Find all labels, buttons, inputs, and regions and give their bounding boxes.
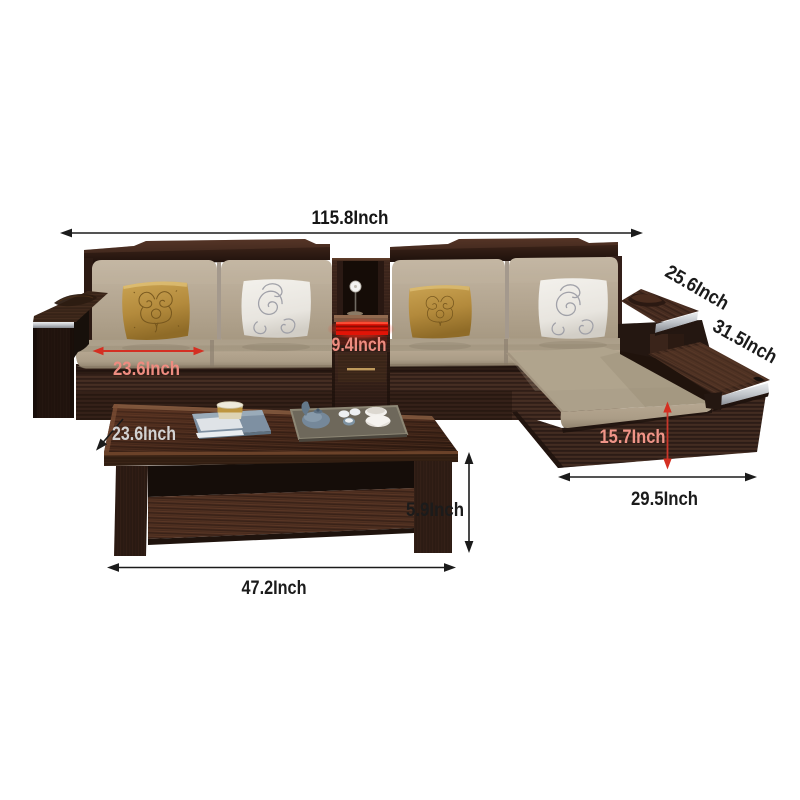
svg-text:23.6Inch: 23.6Inch <box>113 358 180 380</box>
svg-text:115.8Inch: 115.8Inch <box>312 207 389 229</box>
svg-text:15.7Inch: 15.7Inch <box>600 426 666 448</box>
svg-text:47.2Inch: 47.2Inch <box>242 577 307 599</box>
svg-text:29.5Inch: 29.5Inch <box>631 488 698 510</box>
svg-text:23.6Inch: 23.6Inch <box>112 423 176 445</box>
svg-text:5.9Inch: 5.9Inch <box>406 499 464 521</box>
svg-text:9.4Inch: 9.4Inch <box>332 334 387 356</box>
